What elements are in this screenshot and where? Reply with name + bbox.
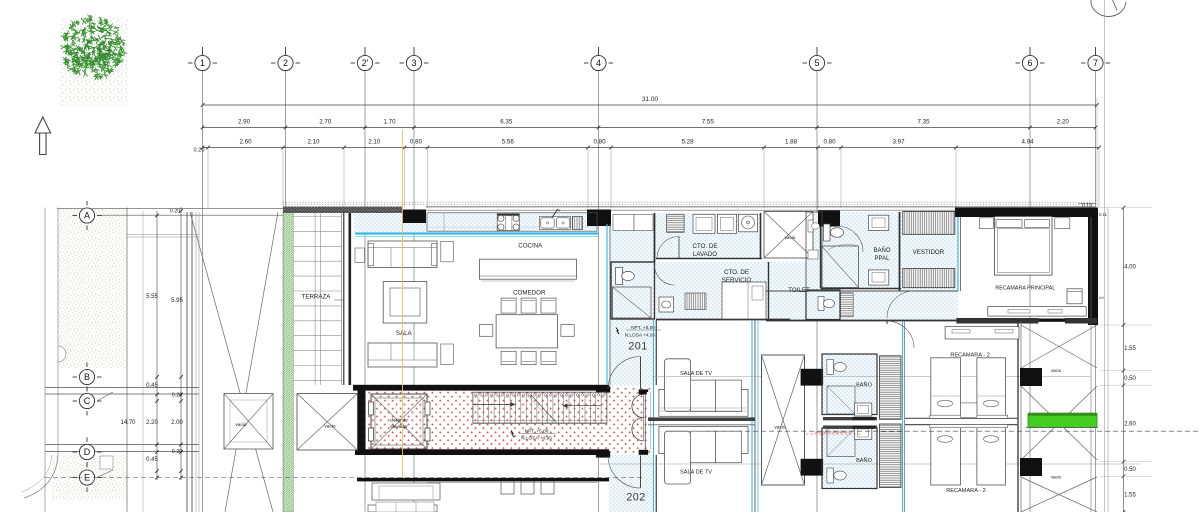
svg-text:1: 1 — [200, 58, 205, 68]
svg-text:0.50: 0.50 — [1124, 376, 1136, 382]
svg-text:0.20: 0.20 — [172, 393, 183, 399]
svg-text:202: 202 — [626, 492, 645, 504]
svg-text:5.56: 5.56 — [502, 139, 515, 146]
svg-text:4.94: 4.94 — [1021, 139, 1034, 146]
svg-text:D: D — [84, 447, 91, 457]
svg-text:TERRAZA: TERRAZA — [302, 294, 332, 301]
svg-text:RECAMARA PRINCIPAL: RECAMARA PRINCIPAL — [995, 286, 1055, 292]
svg-text:N.LOSA +4.95: N.LOSA +4.95 — [625, 333, 656, 339]
svg-text:BAÑO: BAÑO — [856, 457, 873, 464]
svg-text:4.00: 4.00 — [1124, 264, 1136, 270]
svg-text:2.10: 2.10 — [307, 139, 320, 146]
svg-text:SALA DE TV: SALA DE TV — [680, 470, 712, 476]
svg-text:4: 4 — [596, 58, 601, 68]
svg-text:0.20: 0.20 — [172, 449, 183, 455]
svg-text:0.80: 0.80 — [823, 139, 836, 146]
svg-text:1.88: 1.88 — [785, 139, 798, 146]
svg-text:A: A — [84, 211, 90, 221]
svg-text:0.20: 0.20 — [194, 148, 205, 154]
svg-text:2.20: 2.20 — [146, 420, 158, 426]
svg-text:2.00: 2.00 — [171, 420, 183, 426]
svg-text:201: 201 — [628, 341, 647, 353]
svg-text:2': 2' — [362, 58, 369, 68]
svg-text:elevador: elevador — [390, 424, 408, 429]
svg-text:BAÑO: BAÑO — [856, 382, 873, 389]
svg-text:5: 5 — [814, 58, 819, 68]
svg-text:5.95: 5.95 — [171, 298, 183, 304]
svg-text:3.97: 3.97 — [892, 139, 905, 146]
svg-text:5.55: 5.55 — [146, 294, 158, 300]
svg-text:6.35: 6.35 — [500, 119, 513, 126]
svg-text:0.20: 0.20 — [170, 208, 181, 214]
svg-text:N.LOSA +4.95: N.LOSA +4.95 — [521, 436, 552, 442]
svg-text:VESTIDOR: VESTIDOR — [913, 249, 945, 256]
svg-text:C: C — [84, 396, 91, 406]
svg-text:colindancia con departamento 2: colindancia con departamento 2 — [815, 430, 852, 434]
svg-text:B: B — [84, 372, 90, 382]
svg-text:5.28: 5.28 — [681, 139, 694, 146]
svg-text:COCINA: COCINA — [518, 243, 543, 250]
svg-text:vacio: vacio — [774, 425, 786, 431]
svg-text:0.11: 0.11 — [1099, 212, 1108, 217]
svg-text:6: 6 — [1027, 58, 1032, 68]
svg-text:ducto de: ducto de — [390, 418, 408, 423]
svg-text:CTO. DE: CTO. DE — [693, 243, 718, 250]
svg-text:0.45: 0.45 — [146, 457, 158, 463]
svg-text:BAÑO: BAÑO — [873, 247, 890, 254]
svg-text:3: 3 — [411, 58, 416, 68]
svg-text:vacio: vacio — [324, 424, 336, 430]
svg-text:7: 7 — [1093, 58, 1098, 68]
svg-text:0.80: 0.80 — [593, 139, 606, 146]
svg-text:1.55: 1.55 — [1124, 346, 1136, 352]
svg-text:7.55: 7.55 — [702, 119, 715, 126]
svg-text:2.60: 2.60 — [239, 139, 252, 146]
svg-text:COMEDOR: COMEDOR — [513, 290, 546, 297]
svg-text:LAVADO: LAVADO — [693, 251, 717, 258]
svg-text:0.50: 0.50 — [1124, 467, 1136, 473]
svg-text:SALA: SALA — [396, 330, 413, 337]
svg-text:b4: b4 — [1099, 295, 1104, 300]
svg-text:2.20: 2.20 — [1057, 119, 1070, 126]
svg-text:RECAMARA - 2: RECAMARA - 2 — [946, 488, 985, 494]
svg-text:2.10: 2.10 — [368, 139, 381, 146]
svg-text:CTO. DE: CTO. DE — [724, 269, 749, 276]
svg-text:vacio: vacio — [785, 235, 796, 240]
svg-text:0.80: 0.80 — [410, 139, 423, 146]
svg-text:7.35: 7.35 — [917, 119, 930, 126]
svg-text:2.60: 2.60 — [1124, 422, 1136, 428]
svg-text:1.70: 1.70 — [383, 119, 396, 126]
svg-text:vacio: vacio — [1051, 368, 1062, 373]
svg-text:PPAL: PPAL — [875, 256, 891, 262]
svg-text:2.70: 2.70 — [319, 119, 332, 126]
svg-text:2.90: 2.90 — [238, 119, 251, 126]
svg-text:SERVICIO: SERVICIO — [722, 277, 752, 284]
svg-text:31.00: 31.00 — [642, 96, 658, 103]
svg-text:1.55: 1.55 — [1124, 492, 1136, 498]
svg-text:2: 2 — [283, 58, 288, 68]
svg-text:vacio: vacio — [235, 422, 247, 428]
svg-text:vacio: vacio — [1051, 475, 1062, 480]
svg-text:14.70: 14.70 — [120, 420, 136, 426]
svg-text:0.45: 0.45 — [146, 383, 158, 389]
